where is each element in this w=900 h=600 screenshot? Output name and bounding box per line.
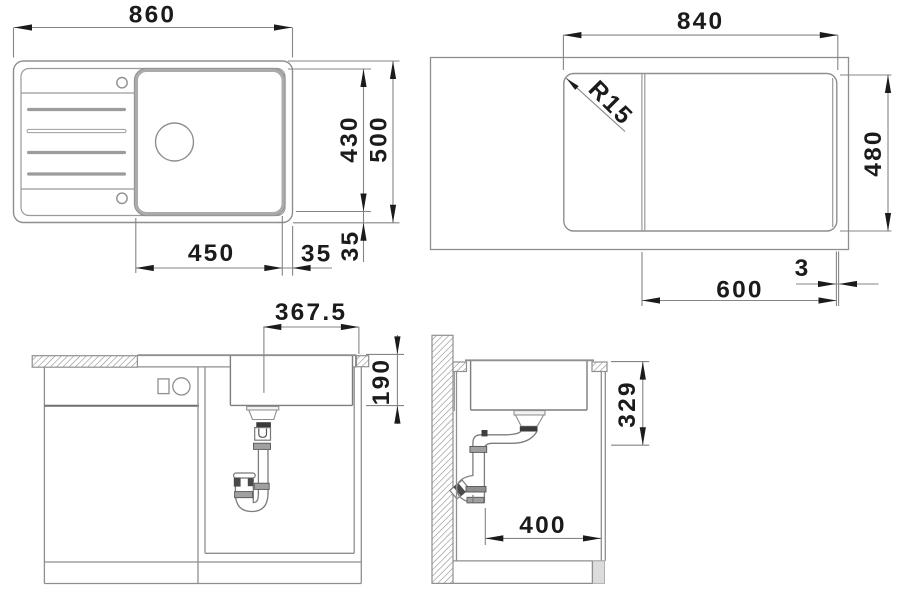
svg-text:600: 600 bbox=[716, 277, 763, 304]
svg-text:430: 430 bbox=[336, 115, 363, 162]
svg-text:35: 35 bbox=[337, 230, 364, 262]
svg-text:400: 400 bbox=[519, 512, 566, 539]
svg-text:500: 500 bbox=[366, 115, 393, 162]
svg-text:329: 329 bbox=[614, 380, 641, 427]
svg-text:190: 190 bbox=[368, 358, 395, 405]
svg-text:450: 450 bbox=[188, 240, 235, 267]
svg-text:480: 480 bbox=[860, 129, 887, 176]
svg-text:860: 860 bbox=[129, 2, 176, 29]
svg-text:3: 3 bbox=[795, 255, 811, 282]
svg-text:35: 35 bbox=[301, 241, 333, 268]
svg-text:840: 840 bbox=[677, 8, 724, 35]
svg-text:367.5: 367.5 bbox=[275, 299, 347, 326]
